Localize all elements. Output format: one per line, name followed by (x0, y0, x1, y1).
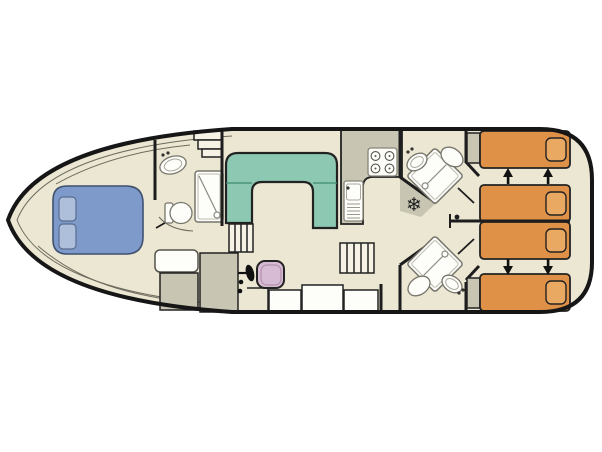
faucet-icon (406, 150, 409, 153)
faucet-icon (161, 153, 164, 156)
drain-icon (214, 212, 220, 218)
galley-sink (344, 181, 363, 221)
aft-cabins (450, 131, 570, 311)
wardrobe (467, 278, 480, 308)
entry-step (344, 290, 378, 312)
bow-cabin-steps (229, 224, 253, 252)
control-knob (238, 289, 243, 294)
faucet-icon (457, 291, 460, 294)
bed-pillow (59, 197, 76, 221)
wardrobe (467, 133, 480, 163)
faucet-icon (410, 147, 413, 150)
door-handle-icon (455, 215, 460, 220)
single-bed (480, 131, 570, 168)
faucet-icon (166, 151, 169, 154)
faucet-icon (461, 288, 464, 291)
stove (368, 148, 397, 176)
bed-pillow (546, 138, 566, 161)
faucet-icon (346, 186, 349, 189)
fridge-icon: ❄ (406, 194, 422, 216)
bed-pillow (546, 229, 566, 252)
step-seat (155, 250, 198, 272)
boat-floorplan: ❄ (0, 0, 602, 452)
entry-step (302, 285, 343, 312)
bed-pillow (59, 224, 76, 249)
toilet (165, 203, 192, 224)
entry-step (269, 290, 301, 312)
single-bed (480, 274, 570, 311)
floorplan-svg: ❄ (0, 0, 602, 452)
bow-cabin (53, 186, 143, 254)
control-knob (239, 280, 244, 285)
aft-steps (340, 243, 374, 273)
shower (195, 171, 223, 222)
single-bed (480, 185, 570, 222)
single-bed (480, 222, 570, 259)
bed-pillow (546, 281, 566, 304)
bed-pillow (546, 192, 566, 215)
helm-console (200, 253, 238, 312)
